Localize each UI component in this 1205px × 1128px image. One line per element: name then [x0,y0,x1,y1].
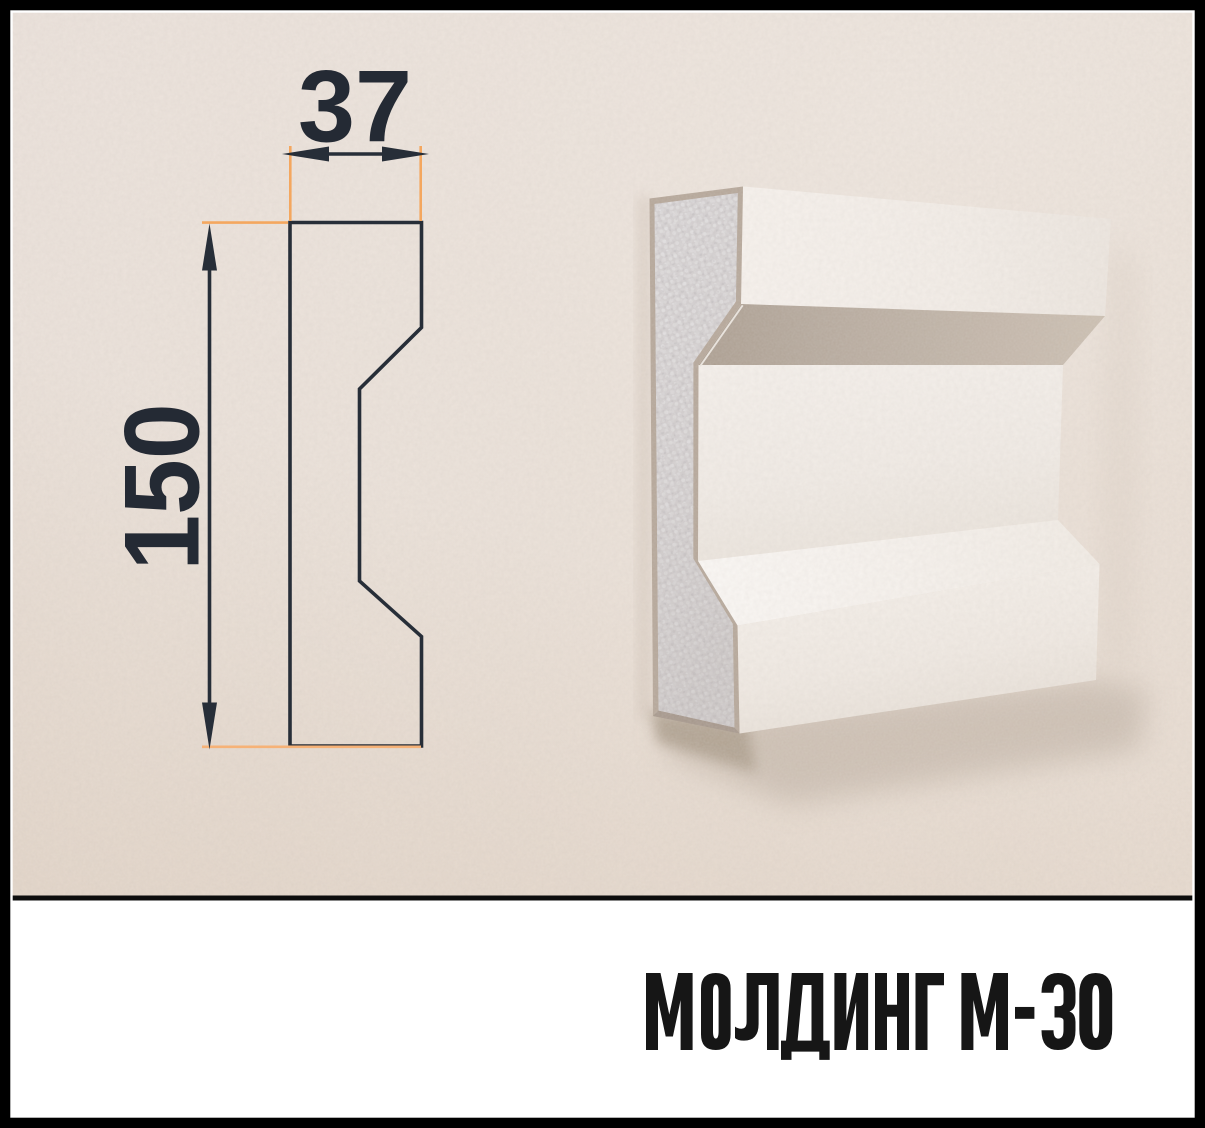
svg-text:37: 37 [298,50,412,164]
svg-text:150: 150 [102,404,222,571]
